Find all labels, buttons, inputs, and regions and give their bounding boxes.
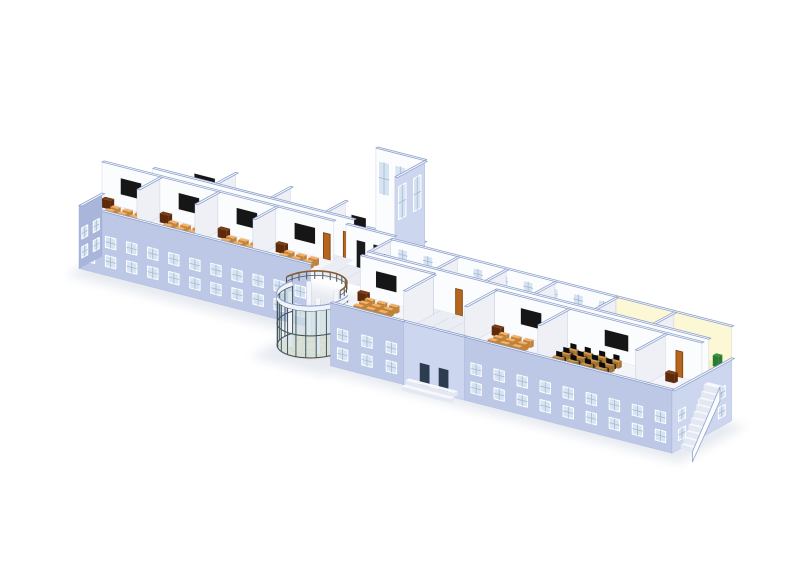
building-cutaway-figure: 3D isometric cutaway rendering of a two-…: [40, 16, 800, 566]
office-desk: [674, 372, 677, 383]
isometric-building-svg: [40, 16, 800, 566]
atrium-column-cap: [334, 288, 339, 290]
classroom-door: [323, 233, 330, 261]
classroom-door: [456, 289, 463, 317]
atrium-column-cap: [315, 298, 320, 300]
atrium-column-cap: [306, 281, 311, 283]
